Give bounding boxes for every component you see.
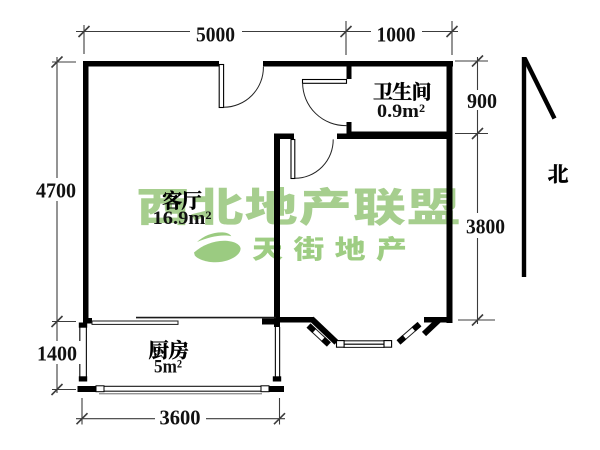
svg-text:16.9m²: 16.9m² xyxy=(153,208,212,229)
svg-text:1400: 1400 xyxy=(37,342,77,366)
svg-text:3800: 3800 xyxy=(466,215,505,239)
svg-text:900: 900 xyxy=(467,89,497,113)
svg-text:0.9m²: 0.9m² xyxy=(377,101,425,122)
svg-text:4700: 4700 xyxy=(36,179,76,203)
svg-text:5000: 5000 xyxy=(196,23,235,47)
svg-text:3600: 3600 xyxy=(160,406,201,430)
svg-text:1000: 1000 xyxy=(377,23,416,47)
svg-text:5m²: 5m² xyxy=(154,356,182,377)
